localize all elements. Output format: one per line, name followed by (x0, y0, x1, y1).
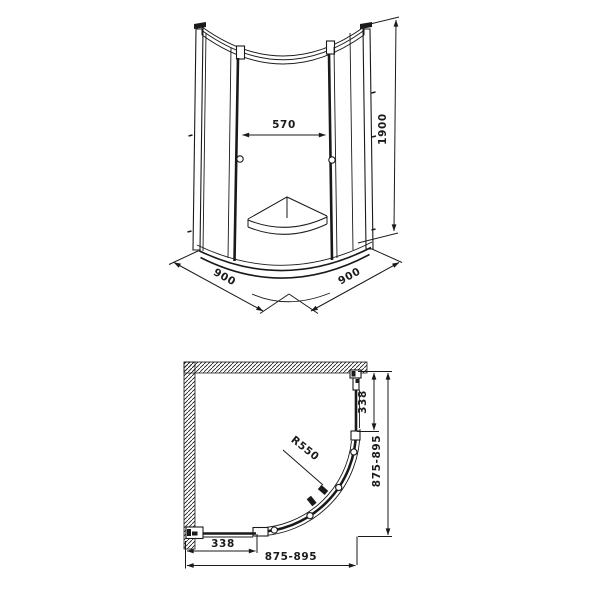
front-elevation-view: 570 1900 900 900 (169, 17, 402, 314)
wall-hatch-left (184, 362, 195, 549)
dimension-label-875-895-bottom: 875-895 (265, 551, 317, 563)
dimension-570: 570 (243, 119, 326, 135)
wall-hatch-top (184, 362, 367, 373)
door-roller (336, 484, 342, 490)
shower-tray-front (248, 197, 327, 234)
door-roller (307, 513, 313, 519)
curved-top-rail (202, 27, 364, 64)
right-door-knob-icon (329, 157, 335, 163)
dimension-338-top: 338 (357, 372, 392, 432)
door-handle (318, 485, 328, 495)
plan-view: 338 875-895 R550 338 875-895 (184, 362, 392, 569)
door-roller (351, 449, 357, 455)
dimension-900-left: 900 (169, 251, 289, 314)
technical-drawing-page: 570 1900 900 900 (0, 0, 600, 600)
radius-callout: R550 (283, 434, 323, 485)
left-door-guide (237, 46, 245, 59)
door-top-bracket (351, 431, 360, 440)
wall-corner (184, 362, 367, 549)
right-door-guide (327, 41, 335, 54)
plan-top-wall-profile (350, 370, 361, 390)
plan-bottom-panel (203, 534, 256, 538)
door-roller (271, 527, 277, 533)
shower-enclosure-drawing: 570 1900 900 900 (0, 0, 600, 600)
dimension-label-1900: 1900 (377, 113, 389, 145)
dimension-label-338-top: 338 (357, 390, 369, 414)
dimension-label-570: 570 (272, 119, 296, 131)
left-door-knob-icon (237, 156, 243, 162)
dimension-label-875-895-right: 875-895 (371, 435, 383, 487)
plan-bottom-wall-profile (186, 527, 203, 539)
door-handle (307, 496, 317, 506)
right-wall-profile (360, 22, 376, 249)
dimension-label-338-bottom: 338 (211, 538, 235, 550)
